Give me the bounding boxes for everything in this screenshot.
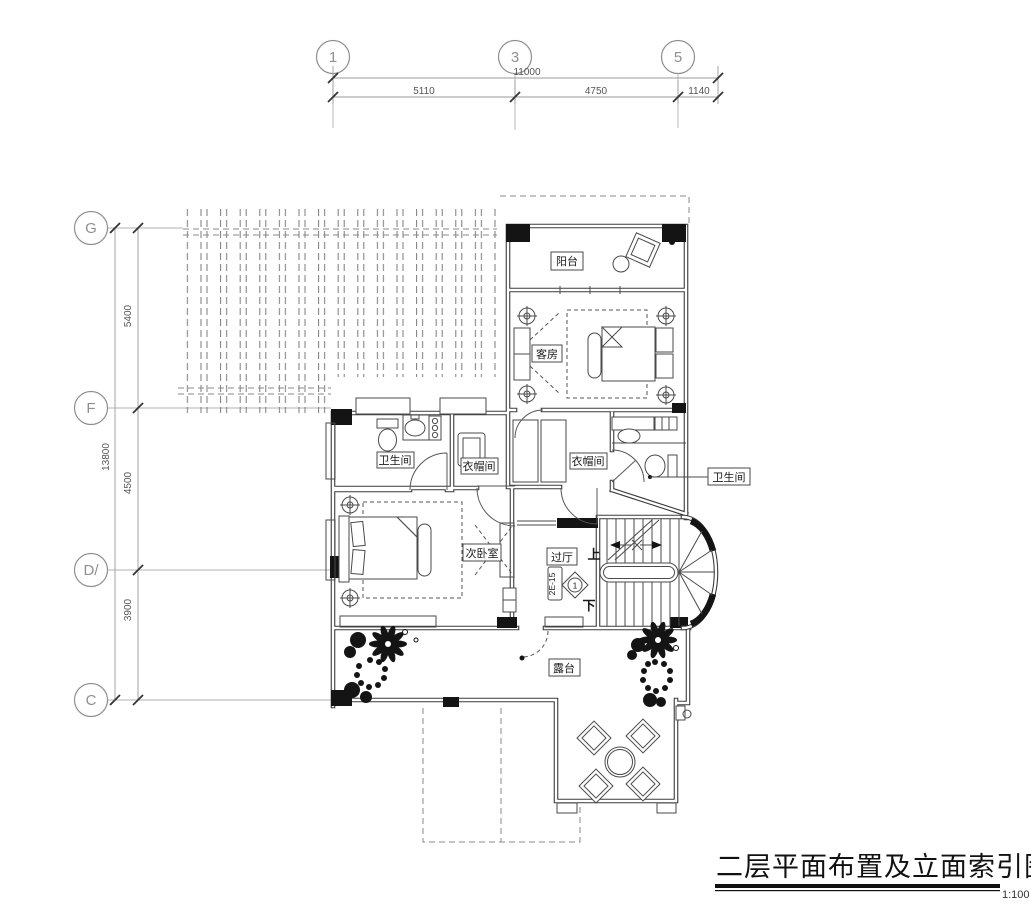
plant-symbol <box>344 625 418 703</box>
room-label-bedroom-second: 次卧室 <box>466 546 499 560</box>
grid-bubble-1-label: 1 <box>329 49 337 66</box>
bathroom-left: 卫生间 <box>377 415 447 490</box>
dim-left-overall: 13800 <box>101 443 112 471</box>
roof-overhang <box>500 196 689 226</box>
bed-symbol <box>602 327 673 381</box>
title-underline-thin <box>715 890 1000 891</box>
lounge-chair-symbol <box>626 233 660 267</box>
drawing-scale: 1:100 <box>1002 889 1030 901</box>
floor-drain-icon <box>669 239 675 245</box>
terrace: 露台 <box>344 621 691 813</box>
grid-bubble-5-label: 5 <box>674 49 682 66</box>
room-label-closet-center: 衣帽间 <box>572 454 605 468</box>
sink-symbol <box>618 429 640 443</box>
dim-top-overall: 11000 <box>513 67 541 78</box>
dim-top-seg1: 5110 <box>413 86 435 97</box>
outdoor-table-set <box>577 719 660 803</box>
room-label-guest-room: 客房 <box>536 347 558 361</box>
door-swing <box>477 486 515 526</box>
stair-up-label: 上 <box>587 547 600 562</box>
dim-left-seg2: 4500 <box>123 471 134 494</box>
grid-bubble-G-label: G <box>85 220 97 237</box>
cabinet <box>655 417 677 430</box>
cabinet-hatch <box>612 417 654 430</box>
door-swing-dashed <box>522 631 548 657</box>
dim-top-seg2: 4750 <box>585 86 608 97</box>
dim-left-seg3: 3900 <box>123 598 134 621</box>
stair-handrail <box>600 563 678 582</box>
toilet-symbol <box>377 419 398 451</box>
pergola-slats-right <box>330 207 497 377</box>
sink-symbol <box>403 415 429 440</box>
side-table-symbol <box>613 256 629 272</box>
window-hatch <box>340 616 436 627</box>
plant-symbol <box>627 621 679 707</box>
stairs: 上 下 <box>582 517 716 628</box>
room-label-hall: 过厅 <box>551 551 573 564</box>
cabinet-hatch <box>356 398 410 414</box>
elevation-index-number: 1 <box>573 581 578 591</box>
pergola-trellis <box>178 207 497 413</box>
room-label-terrace: 露台 <box>553 661 575 675</box>
grid-bubble-C-label: C <box>86 692 97 709</box>
floor-plan-page: 1 3 5 11000 5110 4750 1140 G F D/ C <box>0 0 1031 907</box>
dim-left-seg1: 5400 <box>123 304 134 327</box>
elevation-index-marker: 2E-15 1 <box>547 567 588 600</box>
grid-bubble-F-label: F <box>86 400 95 417</box>
second-bedroom: 次卧室 <box>339 486 516 612</box>
terrace-steps <box>557 803 676 813</box>
stair-down-label: 下 <box>582 598 595 613</box>
balcony: 阳台 <box>551 233 675 272</box>
elevation-index-code: 2E-15 <box>547 572 557 595</box>
window-hatch <box>545 617 583 627</box>
closet-center: 衣帽间 <box>513 420 607 524</box>
title-underline-thick <box>715 884 1000 888</box>
bench-symbol <box>588 333 601 378</box>
closet-left: 衣帽间 <box>458 433 498 474</box>
room-label-closet-left: 衣帽间 <box>463 459 496 473</box>
room-label-bath-right: 卫生间 <box>713 470 746 484</box>
wall-fixture <box>676 706 691 720</box>
table-symbol <box>605 747 635 777</box>
bench-symbol <box>418 524 431 576</box>
drawing-title: 二层平面布置及立面索引图 <box>716 852 1031 882</box>
dim-top-seg3: 1140 <box>688 86 710 97</box>
floor-plan-drawing: 1 3 5 11000 5110 4750 1140 G F D/ C <box>0 0 1031 907</box>
room-label-bath-left: 卫生间 <box>379 453 412 467</box>
door-swing <box>612 450 644 482</box>
wardrobe-symbol <box>541 420 566 482</box>
door-swing <box>515 410 543 438</box>
shower-panel-symbol <box>429 416 441 440</box>
hall: 过厅 2E-15 1 <box>517 521 588 600</box>
pergola-slats-left <box>183 207 330 413</box>
toilet-symbol <box>645 455 677 477</box>
bed-symbol <box>339 516 417 582</box>
room-label-balcony: 阳台 <box>556 254 578 268</box>
door-swing <box>410 453 447 490</box>
grid-bubble-3-label: 3 <box>511 49 519 66</box>
title-block: 二层平面布置及立面索引图 1:100 <box>715 852 1031 901</box>
grid-bubble-D-label: D/ <box>84 562 100 579</box>
cabinet-hatch <box>440 398 486 414</box>
bathroom-right: 卫生间 <box>612 429 750 485</box>
